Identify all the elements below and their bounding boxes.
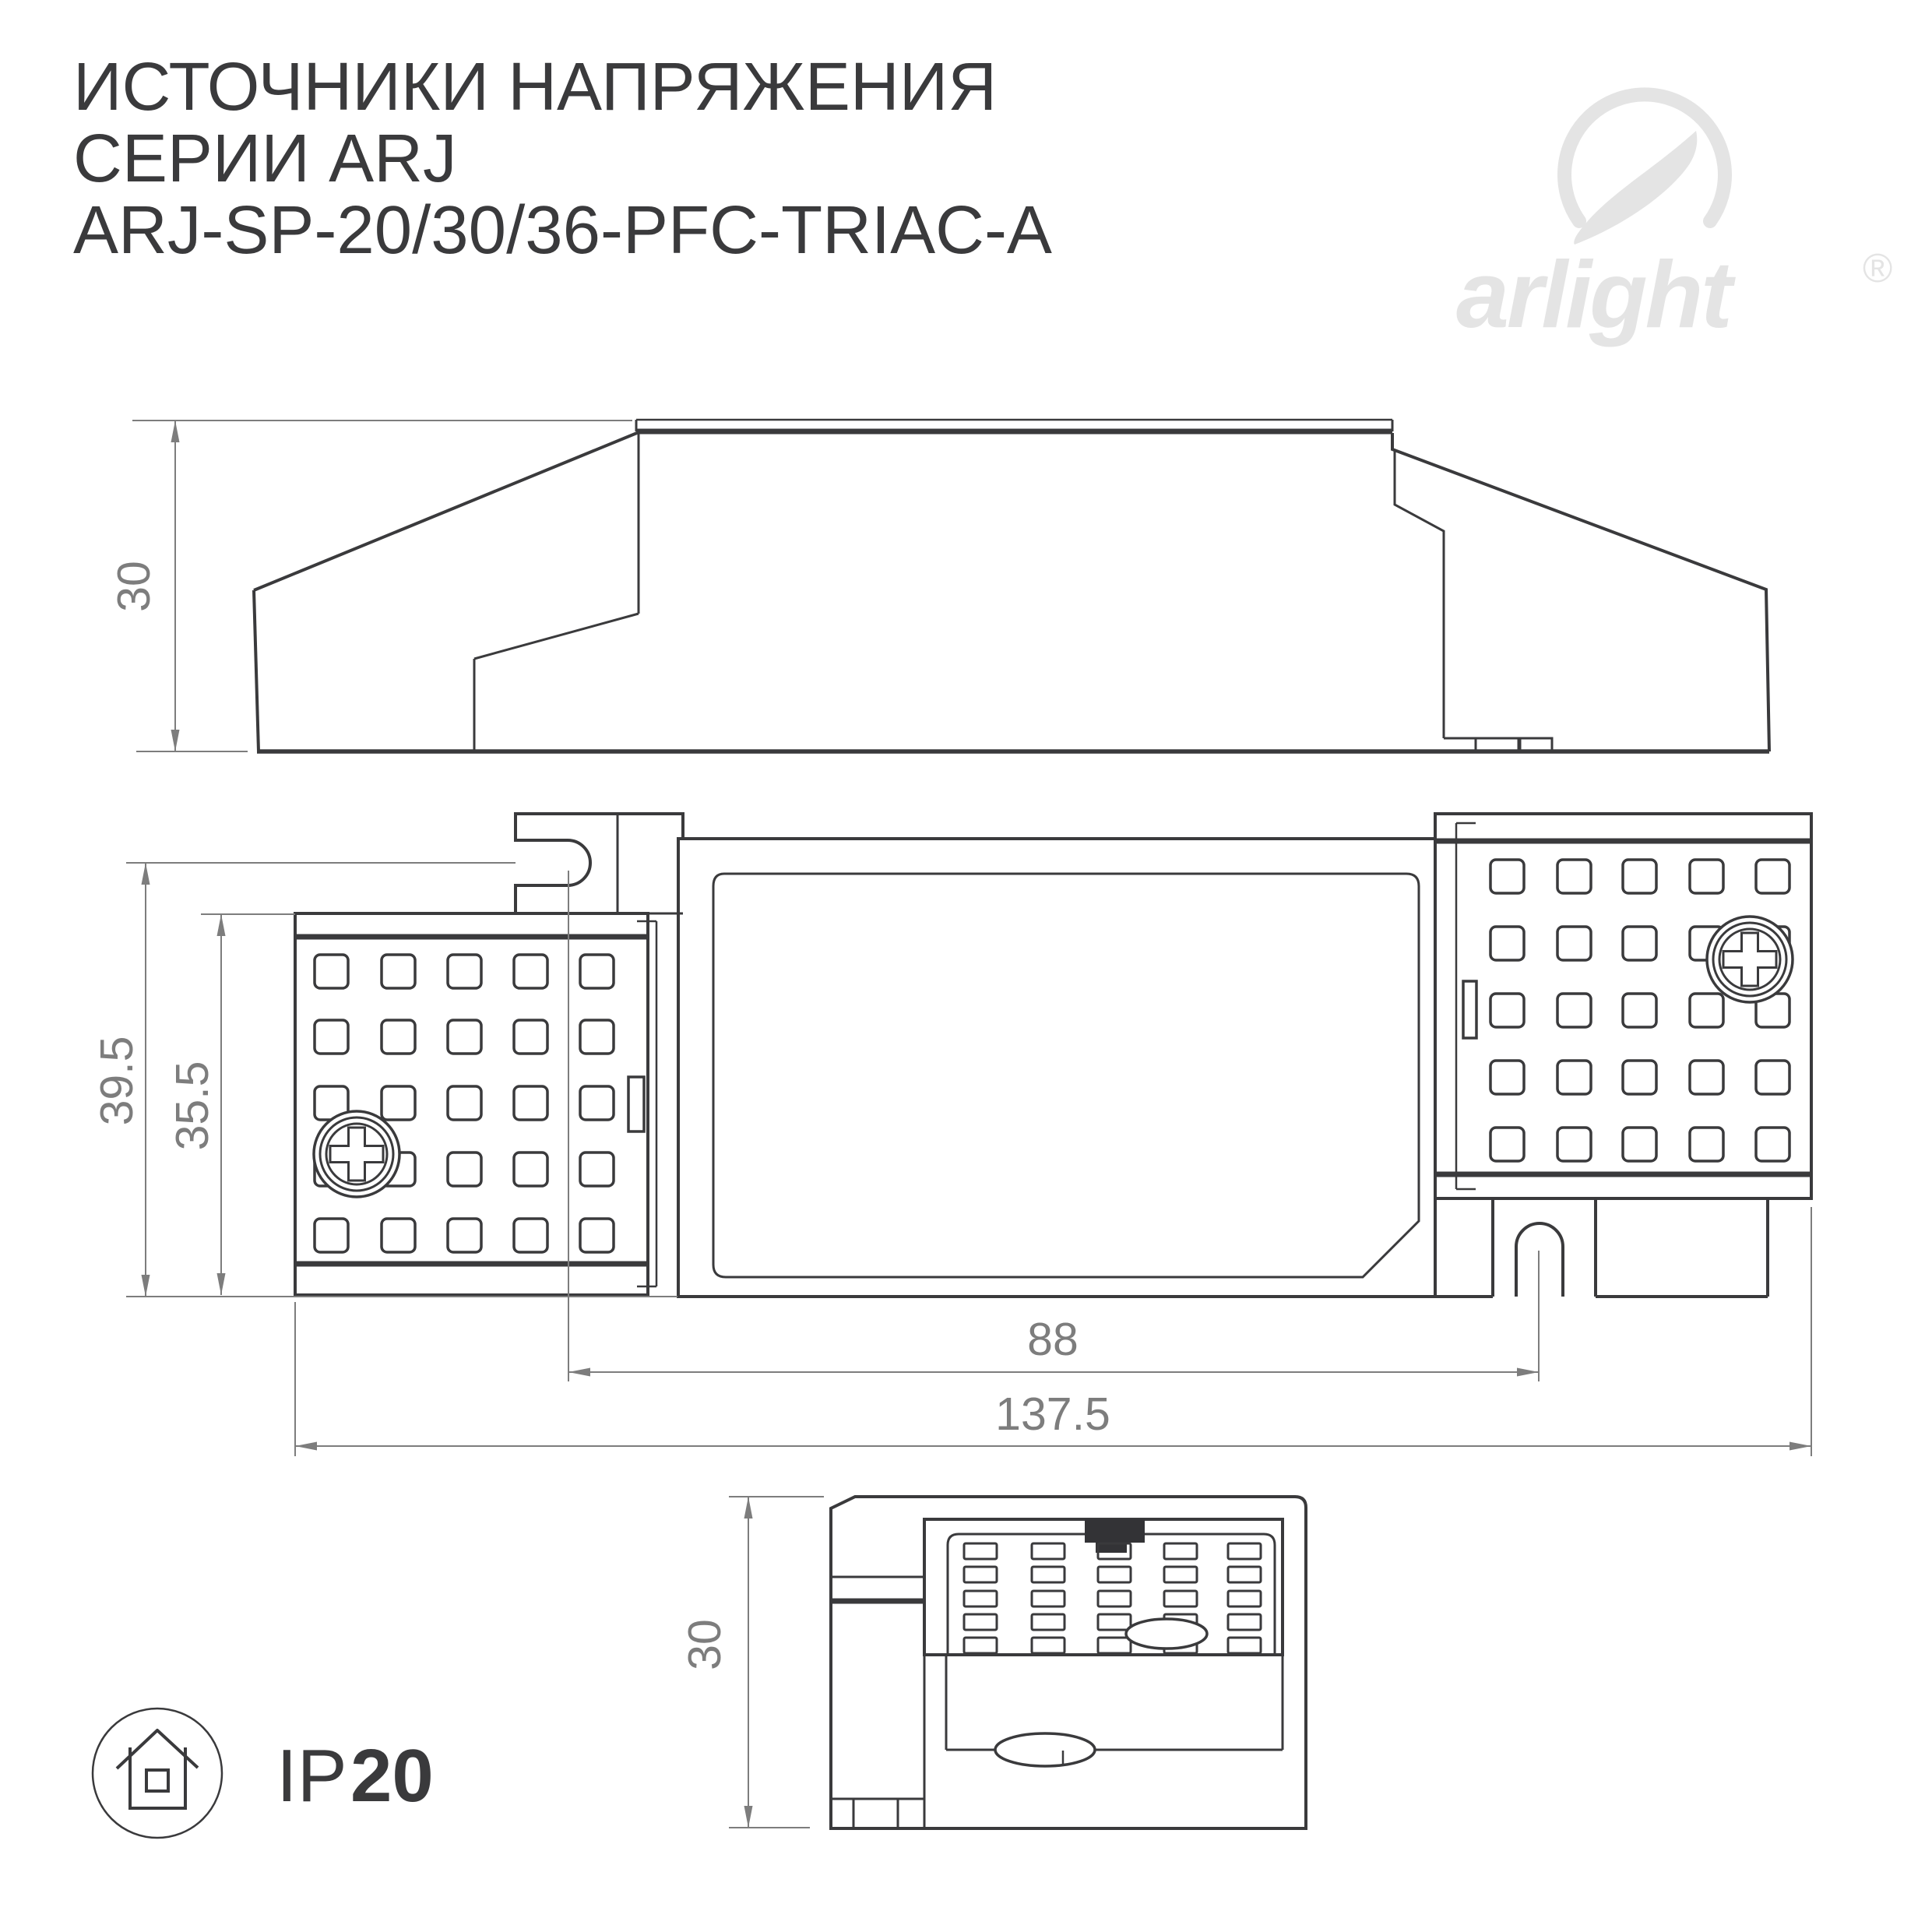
screw-right [1707, 917, 1793, 1002]
house-icon [117, 1730, 198, 1808]
dimension-side-height: 30 [108, 421, 632, 751]
cable-knockout-lower [995, 1733, 1095, 1766]
logo-registered-mark: ® [1863, 246, 1892, 291]
terminal-cover-right [1435, 814, 1811, 1198]
dimension-label-overall-length: 137.5 [995, 1388, 1110, 1440]
dimension-plan-inner-width: 35.5 [167, 914, 295, 1295]
ip-prefix: IP [276, 1734, 347, 1818]
cable-knockout-upper [1126, 1619, 1207, 1649]
dimension-label-plan-inner-width: 35.5 [167, 1061, 218, 1151]
terminal-cover-left [295, 913, 656, 1295]
vent-slots-end [964, 1543, 1261, 1653]
logo-leaf-icon [1574, 131, 1697, 245]
cover-clip [1085, 1519, 1145, 1543]
end-view: 30 [679, 1497, 1306, 1828]
dimension-label-plan-outer-width: 39.5 [91, 1036, 143, 1126]
logo-wordmark: arlight [1456, 241, 1736, 347]
ip-value: 20 [350, 1734, 434, 1818]
dimension-label-side-height: 30 [108, 561, 160, 612]
technical-drawing: arlight ® [0, 0, 1932, 1932]
ip-rating: IP 20 [93, 1709, 434, 1838]
dimension-label-hole-spacing: 88 [1027, 1314, 1079, 1365]
screw-left [314, 1111, 399, 1197]
mounting-tab-top-left [516, 814, 683, 913]
dimension-end-height: 30 [679, 1497, 824, 1828]
chassis-outline [678, 839, 1435, 1297]
side-view: 30 [108, 420, 1769, 751]
mounting-tab-bottom-right [1435, 1198, 1768, 1297]
end-outline [831, 1497, 1306, 1828]
top-view: 39.5 35.5 88 [91, 814, 1811, 1456]
arlight-logo: arlight ® [1456, 94, 1892, 347]
datasheet-page: ИСТОЧНИКИ НАПРЯЖЕНИЯ СЕРИИ ARJ ARJ-SP-20… [0, 0, 1932, 1932]
chassis-inner-panel [713, 874, 1419, 1277]
dimension-label-end-height: 30 [679, 1619, 730, 1670]
indoor-use-icon [93, 1709, 222, 1838]
